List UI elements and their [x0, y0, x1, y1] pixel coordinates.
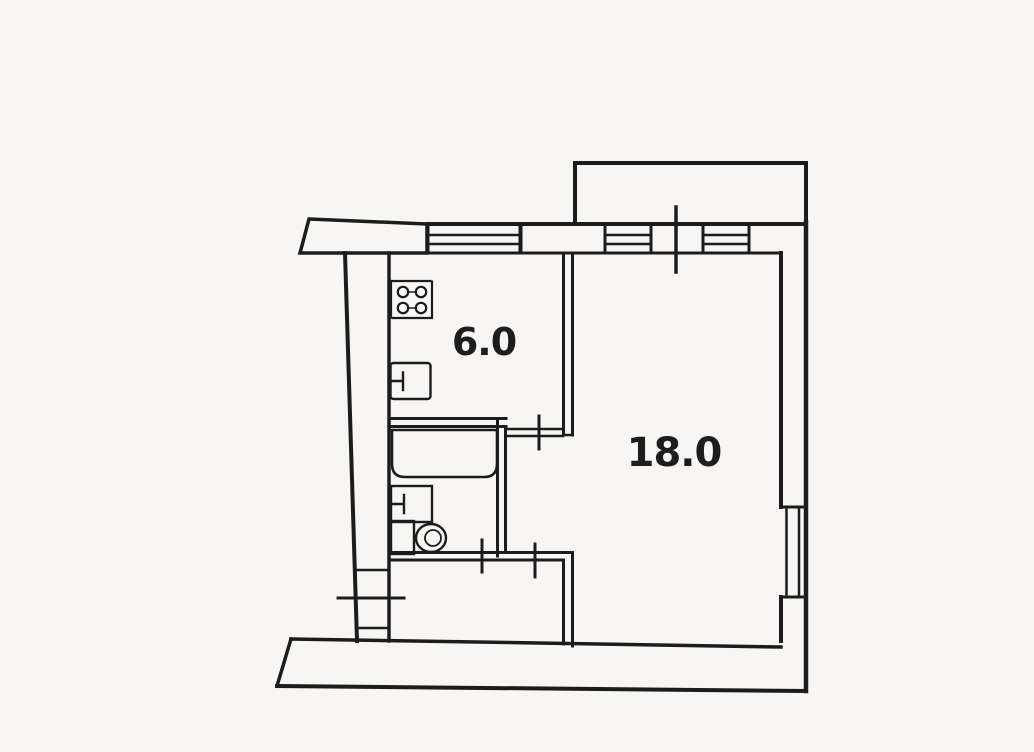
toilet-icon	[391, 521, 446, 554]
kitchen-bathroom-wall	[389, 419, 506, 427]
floor-plan-drawing: 6.0 18.0	[0, 0, 1034, 752]
left-exterior-wall	[345, 253, 389, 641]
stove-icon	[391, 281, 432, 318]
hallway-right-wall	[564, 553, 573, 647]
right-exterior-wall	[781, 222, 806, 691]
bathtub-icon	[392, 430, 497, 477]
washbasin-icon	[391, 486, 432, 522]
scanned-floor-plan-page: 6.0 18.0	[0, 0, 1034, 752]
kitchen-living-room-wall	[564, 253, 573, 435]
kitchen-window	[428, 224, 520, 253]
balcony-outline	[575, 163, 806, 224]
bathroom-right-wall	[498, 419, 506, 556]
right-wall-window	[781, 507, 806, 597]
kitchen-door-wall	[506, 429, 563, 436]
living-room-window-left	[605, 235, 651, 244]
bottom-exterior-wall	[277, 639, 806, 691]
living-room-window-right	[703, 235, 749, 244]
wall-slab	[300, 219, 427, 253]
kitchen-sink-icon	[391, 363, 431, 399]
kitchen-area-label: 6.0	[452, 320, 516, 364]
living-room-area-label: 18.0	[627, 430, 722, 476]
